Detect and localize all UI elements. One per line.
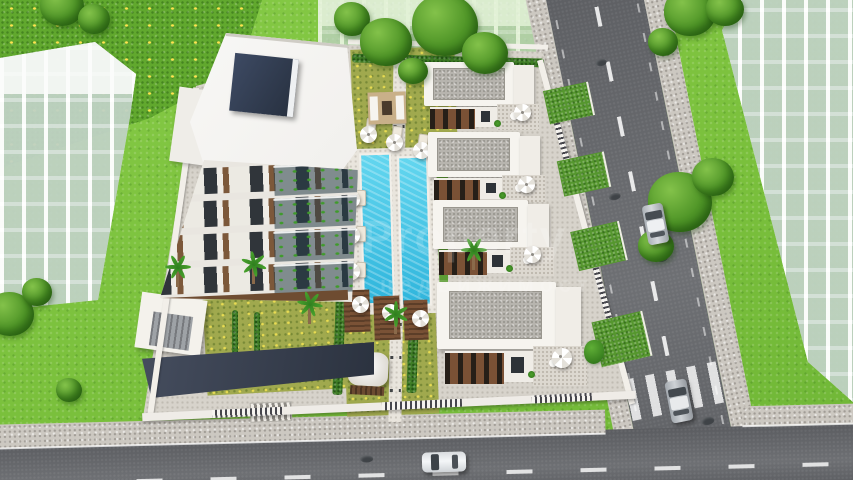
pergola-bench xyxy=(396,95,405,119)
watermark: Property недвижимость xyxy=(362,214,613,296)
umbrella-icon xyxy=(412,310,429,327)
umbrella-icon xyxy=(518,176,535,193)
umbrella-icon xyxy=(514,104,531,121)
garage-structure xyxy=(134,292,207,357)
palm-tree xyxy=(160,255,194,293)
rooftop-stair-box xyxy=(229,53,299,117)
tree xyxy=(462,32,508,74)
tree xyxy=(648,28,678,56)
umbrella-icon xyxy=(360,126,377,143)
tree xyxy=(22,278,52,306)
gazebo-base xyxy=(350,385,384,396)
villa-wood-facade xyxy=(434,178,480,201)
fence-slats xyxy=(532,393,592,404)
palm-tree xyxy=(236,252,270,290)
umbrella-icon xyxy=(352,296,369,313)
villa-roof-panel xyxy=(449,291,542,339)
apartment-balcony xyxy=(273,195,358,229)
pergola xyxy=(367,91,406,124)
tree xyxy=(78,4,110,34)
white-car-south-road xyxy=(422,451,467,472)
tree xyxy=(398,58,428,84)
car-rear-window xyxy=(452,455,458,469)
villa-wood-facade xyxy=(430,107,475,129)
context-building-left xyxy=(0,42,136,310)
umbrella-icon xyxy=(552,348,572,368)
pergola-bench xyxy=(370,96,379,120)
garage-ramp xyxy=(149,311,193,350)
villa-roof-panel xyxy=(433,68,505,100)
villa-wood-facade xyxy=(445,351,504,384)
aerial-render-scene: Property недвижимость xyxy=(0,0,853,480)
tree xyxy=(56,378,82,402)
tree xyxy=(692,158,734,196)
umbrella-icon xyxy=(386,134,403,151)
pergola-table xyxy=(382,101,392,115)
palm-tree xyxy=(378,302,412,340)
villa-roof-panel xyxy=(437,138,510,171)
villa-4 xyxy=(437,282,589,386)
watermark-line1: Property xyxy=(362,214,613,260)
palm-tree xyxy=(292,292,326,330)
apartment-balcony xyxy=(273,228,358,262)
watermark-line2: недвижимость xyxy=(380,274,613,296)
car-windshield xyxy=(431,454,439,470)
shrub xyxy=(499,192,506,199)
